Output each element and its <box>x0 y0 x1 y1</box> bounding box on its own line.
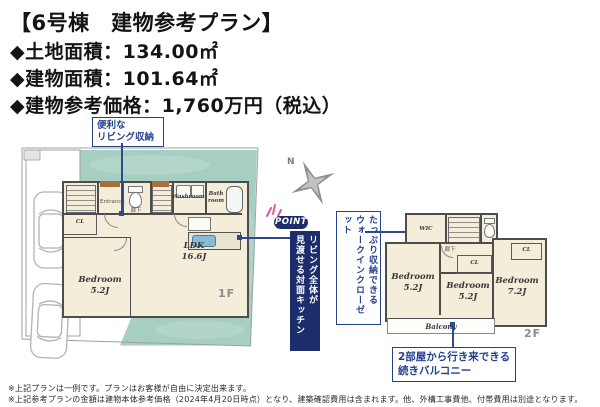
bedroom1-size: 5.2J <box>74 286 126 297</box>
ldk-name: LDK <box>168 241 220 252</box>
leader-line <box>452 327 454 347</box>
compass-north-label: N <box>287 157 295 167</box>
bedroom-right-name: Bedroom <box>495 276 539 287</box>
cabinet <box>100 181 120 187</box>
hallway-label: 廊下 <box>126 208 146 214</box>
closet: CL <box>64 213 97 235</box>
floor2-main: CL 廊下 Bedroom 5.2J Bedroom 5.2J <box>385 242 498 322</box>
living-storage-callout: 便利な リビング収納 <box>92 117 164 147</box>
closet: CL <box>457 255 492 274</box>
closet-label: CL <box>64 219 96 226</box>
wall <box>480 215 482 245</box>
bedroom-left-name: Bedroom <box>389 272 437 283</box>
wall <box>97 183 99 213</box>
leader-line <box>121 143 123 213</box>
washroom-label: Washroom <box>172 194 205 201</box>
closet: CL <box>511 243 542 260</box>
door-arc <box>174 214 187 227</box>
wic-label: WIC <box>407 226 445 233</box>
floor1-tag: 1F <box>218 287 235 300</box>
bathtub-icon <box>226 186 243 213</box>
kitchen-banner-line1: リビング全体が <box>305 235 318 347</box>
wic-callout-line2: ウォークインクローゼット <box>339 215 365 321</box>
entrance-label: Entrance <box>100 199 122 205</box>
utility-box <box>24 150 40 160</box>
compass-icon: N <box>284 152 338 206</box>
floor2-right: CL Bedroom 7.2J <box>492 238 547 327</box>
balcony-label: Balcony <box>388 322 494 331</box>
stairs <box>448 217 480 245</box>
kitchen-cabinet <box>188 217 211 231</box>
flyer-plan-page: 【6号棟 建物参考プラン】 ◆土地面積：134.00㎡ ◆建物面積：101.64… <box>0 0 600 407</box>
bedroom-left-size: 5.2J <box>389 283 437 294</box>
wall <box>445 215 447 245</box>
floor2-tag: 2F <box>524 327 541 340</box>
footnote-2: ※上記参考プランの金額は建物本体参考価格（2024年4月20日時点）となり、建築… <box>8 394 583 405</box>
door-arc <box>441 246 453 258</box>
bedroom-mid-name: Bedroom <box>445 281 491 292</box>
balcony-callout-line1: 2部屋から行き来できる <box>398 351 510 365</box>
leader-dot <box>119 211 124 216</box>
bath-label-1: Bath <box>206 191 226 198</box>
leader-line <box>242 237 290 239</box>
ldk-size: 16.6J <box>168 252 220 263</box>
bedroom1-name: Bedroom <box>74 275 126 286</box>
kitchen-point-banner: リビング全体が 見渡せる対面キッチン <box>290 231 320 351</box>
cabinet <box>152 181 169 187</box>
door-arc <box>104 214 118 228</box>
wic-callout: たっぷり収納できる ウォークインクローゼット <box>336 211 381 325</box>
stairs <box>152 185 172 213</box>
point-badge: POINT <box>274 216 308 229</box>
closet-label: CL <box>458 260 491 267</box>
wall <box>439 244 441 315</box>
bath-label-2: room <box>206 198 226 205</box>
leader-dot <box>237 235 242 240</box>
bedroom-mid-size: 5.2J <box>445 292 491 303</box>
leader-line <box>365 231 410 233</box>
kitchen-banner-line2: 見渡せる対面キッチン <box>292 235 305 347</box>
balcony: Balcony <box>387 318 495 334</box>
bedroom-right-size: 7.2J <box>495 287 539 298</box>
stairs <box>66 185 96 213</box>
balcony-callout-line2: 続きバルコニー <box>398 365 510 379</box>
living-storage-line2: リビング収納 <box>97 132 159 144</box>
balcony-callout: 2部屋から行き来できる 続きバルコニー <box>392 347 516 382</box>
living-storage-line1: 便利な <box>97 120 159 132</box>
toilet-icon <box>484 224 495 238</box>
toilet-icon <box>129 192 142 208</box>
footnote-1: ※上記プランは一例です。プランはお客様が自由に決定出来ます。 <box>8 383 251 394</box>
closet-label: CL <box>512 247 541 254</box>
